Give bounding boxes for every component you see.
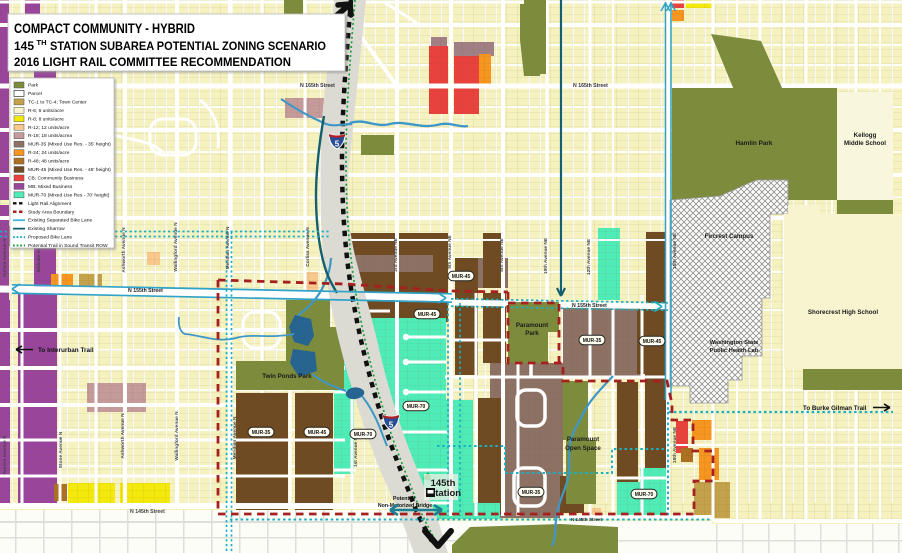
svg-text:15th Avenue NE: 15th Avenue NE [672, 426, 678, 463]
svg-text:1st Avenue N: 1st Avenue N [353, 436, 359, 467]
svg-text:Middle School: Middle School [844, 140, 886, 147]
svg-text:Potential Trail in Sound Trans: Potential Trail in Sound Transit ROW [28, 243, 108, 249]
svg-text:Proposed Bike Lane: Proposed Bike Lane [28, 235, 72, 241]
svg-text:R-6; 6 units/acre: R-6; 6 units/acre [28, 108, 64, 114]
svg-text:Meridian Avenue N: Meridian Avenue N [225, 226, 231, 269]
svg-text:N 145th Street: N 145th Street [130, 509, 165, 515]
svg-text:MUR-45: MUR-45 [418, 312, 437, 318]
svg-text:Kellogg: Kellogg [854, 132, 877, 139]
svg-text:3rd Avenue NE: 3rd Avenue NE [393, 237, 399, 272]
svg-text:Fircrest Campus: Fircrest Campus [705, 233, 754, 240]
svg-text:Aurora Avenue N: Aurora Avenue N [2, 238, 8, 277]
svg-text:145: 145 [14, 39, 34, 53]
svg-text:Potential: Potential [393, 496, 415, 502]
svg-text:MUR-35: MUR-35 [522, 490, 541, 496]
svg-text:Shorecrest High School: Shorecrest High School [808, 309, 878, 316]
svg-text:R-48; 48 units/acre: R-48; 48 units/acre [28, 159, 70, 165]
svg-text:Existing Sharrow: Existing Sharrow [28, 226, 65, 232]
svg-text:Existing Separated Bike Lane: Existing Separated Bike Lane [28, 218, 92, 224]
svg-text:STATION SUBAREA POTENTIAL ZONI: STATION SUBAREA POTENTIAL ZONING SCENARI… [50, 39, 326, 53]
svg-text:N 155th Street: N 155th Street [128, 288, 163, 294]
svg-text:TC-1 to TC-4; Town Center: TC-1 to TC-4; Town Center [28, 99, 87, 105]
svg-text:Public Health Lab: Public Health Lab [710, 348, 759, 354]
svg-text:Corliss Avenue N: Corliss Avenue N [305, 227, 311, 267]
svg-text:R-24; 24 units/acre: R-24; 24 units/acre [28, 150, 70, 156]
svg-text:COMPACT COMMUNITY - HYBRID: COMPACT COMMUNITY - HYBRID [14, 21, 195, 36]
svg-text:MUR-70: MUR-70 [407, 404, 426, 410]
svg-text:10th Avenue NE: 10th Avenue NE [543, 237, 549, 274]
svg-text:N 165th Street: N 165th Street [573, 83, 608, 89]
svg-text:Light Rail Alignment: Light Rail Alignment [28, 201, 72, 207]
svg-text:To Interurban Trail: To Interurban Trail [38, 347, 94, 354]
svg-text:Parcel: Parcel [28, 91, 42, 97]
svg-text:MUR-45: MUR-45 [643, 339, 662, 345]
svg-text:MUR-70: MUR-70 [635, 492, 654, 498]
svg-text:MUR-35 (Mixed Use Res. - 35' h: MUR-35 (Mixed Use Res. - 35' height) [28, 142, 111, 148]
svg-text:Park: Park [525, 330, 539, 337]
svg-text:TH: TH [37, 38, 47, 47]
svg-text:MUR-45 (Mixed Use Res. - 45' h: MUR-45 (Mixed Use Res. - 45' height) [28, 167, 111, 173]
svg-text:Wallingford Avenue N: Wallingford Avenue N [173, 222, 179, 272]
svg-text:12th Avenue NE: 12th Avenue NE [586, 238, 592, 275]
svg-text:MUR-35: MUR-35 [583, 338, 602, 344]
svg-text:To Burke Gilman Trail: To Burke Gilman Trail [803, 405, 867, 412]
svg-text:Paramount: Paramount [567, 436, 599, 443]
svg-text:MB; Mixed Business: MB; Mixed Business [28, 184, 73, 190]
svg-text:MUR-35: MUR-35 [252, 430, 271, 436]
svg-text:Meridian Avenue N: Meridian Avenue N [232, 416, 238, 459]
svg-text:CB; Community Business: CB; Community Business [28, 175, 84, 181]
svg-text:R-18; 18 units/acrea: R-18; 18 units/acrea [28, 133, 72, 139]
svg-text:Washington State: Washington State [710, 340, 760, 346]
svg-text:R-12; 12 units/acre: R-12; 12 units/acre [28, 125, 70, 131]
svg-text:Paramount: Paramount [516, 322, 548, 329]
svg-text:5: 5 [389, 421, 394, 430]
svg-text:N 165th Street: N 165th Street [300, 83, 335, 89]
svg-text:N 155th Street: N 155th Street [572, 303, 607, 309]
svg-text:Study Area Boundary: Study Area Boundary [28, 209, 75, 215]
svg-text:5th Avenue NE: 5th Avenue NE [447, 234, 453, 268]
svg-text:MUR-70: MUR-70 [354, 432, 373, 438]
svg-text:15th Avenue NE: 15th Avenue NE [672, 232, 678, 269]
svg-text:MUR-45: MUR-45 [308, 430, 327, 436]
svg-text:Aurora Avenue N: Aurora Avenue N [2, 435, 8, 474]
svg-text:Ashworth Avenue N: Ashworth Avenue N [120, 413, 126, 459]
svg-text:Stone Avenue N: Stone Avenue N [58, 431, 64, 468]
svg-text:Non-Motorized Bridge: Non-Motorized Bridge [378, 503, 432, 509]
svg-text:Park: Park [28, 83, 39, 89]
svg-text:MUR-45: MUR-45 [452, 274, 471, 280]
svg-text:Hamlin Park: Hamlin Park [736, 140, 773, 147]
svg-text:N 145th Street: N 145th Street [571, 517, 602, 522]
svg-text:Ashworth Avenue N: Ashworth Avenue N [121, 227, 127, 273]
svg-text:Twin Ponds Park: Twin Ponds Park [262, 373, 312, 380]
svg-text:8th Avenue NE: 8th Avenue NE [499, 237, 505, 271]
svg-text:5: 5 [335, 140, 340, 149]
svg-text:MUR-70 (Mixed Use Res - 70' he: MUR-70 (Mixed Use Res - 70' height) [28, 192, 110, 198]
svg-text:Wallingford Avenue N: Wallingford Avenue N [174, 411, 180, 461]
svg-text:Open Space: Open Space [565, 445, 601, 452]
svg-text:R-8; 8 units/acre: R-8; 8 units/acre [28, 116, 64, 122]
svg-text:2016 LIGHT RAIL COMMITTEE RECO: 2016 LIGHT RAIL COMMITTEE RECOMMENDATION [14, 55, 291, 69]
